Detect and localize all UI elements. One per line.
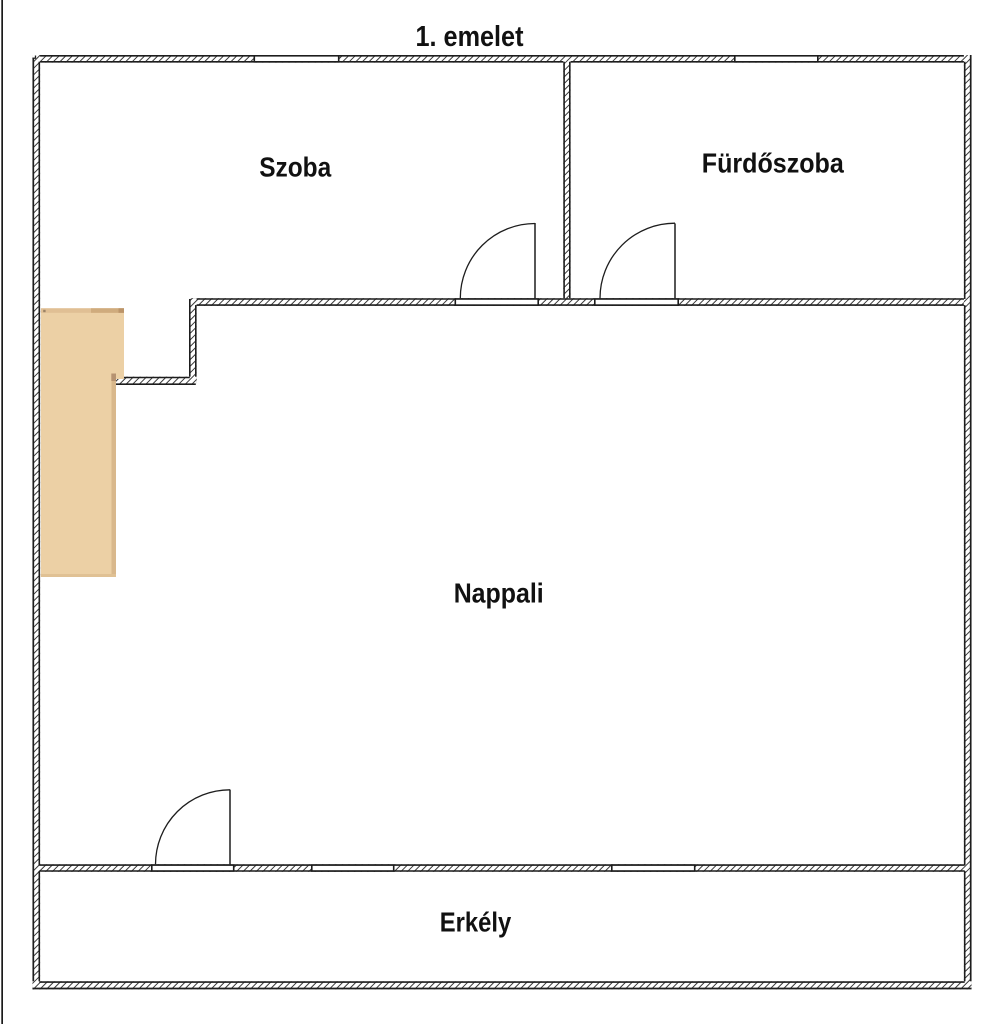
svg-text:Szoba: Szoba (259, 151, 332, 182)
svg-text:Fürdőszoba: Fürdőszoba (702, 147, 845, 178)
svg-text:Nappali: Nappali (454, 577, 544, 608)
svg-text:Erkély: Erkély (440, 906, 512, 937)
svg-text:1. emelet: 1. emelet (416, 21, 524, 53)
